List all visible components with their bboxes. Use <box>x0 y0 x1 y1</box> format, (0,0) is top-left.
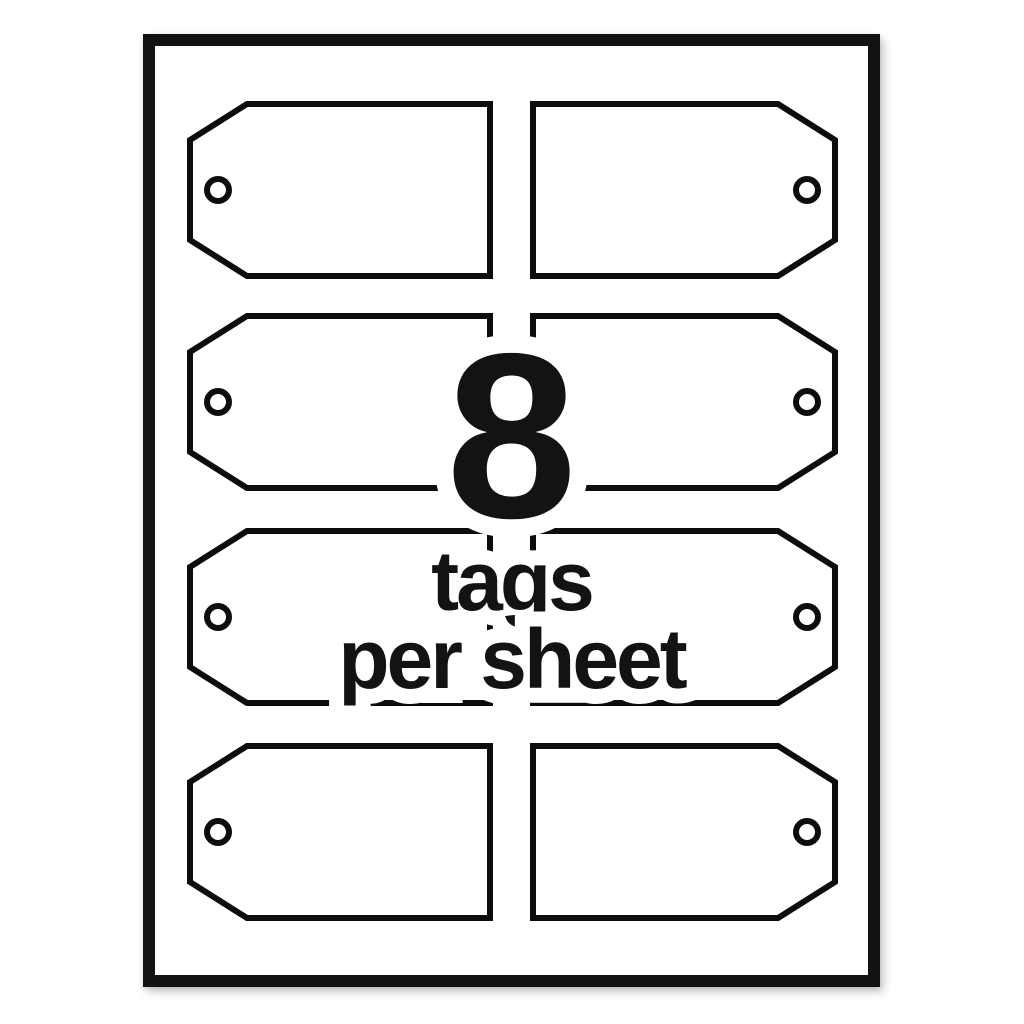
tag-outline-r1c2 <box>533 104 835 276</box>
product-image: 8 8 tags tags per sheet per sheet <box>0 0 1024 1024</box>
per-sheet-value: per sheet <box>143 617 880 701</box>
tag-hole-r1c1 <box>207 179 229 201</box>
tag-unit-text: tags tags <box>143 539 880 623</box>
tag-count-text: 8 8 <box>143 318 880 553</box>
tag-hole-r1c2 <box>796 179 818 201</box>
tag-unit-value: tags <box>143 539 880 623</box>
tag-outline-r1c1 <box>190 104 490 276</box>
tag-outline-r4c1 <box>190 746 490 918</box>
per-sheet-text: per sheet per sheet <box>143 617 880 701</box>
tag-hole-r4c2 <box>796 821 818 843</box>
tag-count-value: 8 <box>143 318 880 553</box>
tag-hole-r4c1 <box>207 821 229 843</box>
tag-outline-r4c2 <box>533 746 835 918</box>
